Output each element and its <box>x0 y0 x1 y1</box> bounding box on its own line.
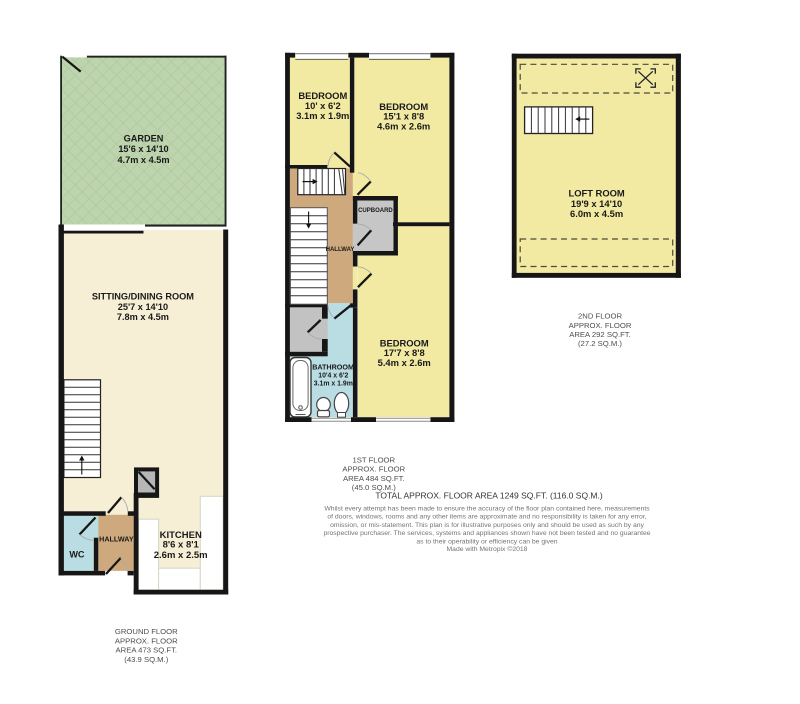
svg-text:25'7 x 14'10: 25'7 x 14'10 <box>118 302 168 312</box>
svg-text:BATHROOM: BATHROOM <box>312 362 354 371</box>
svg-text:APPROX. FLOOR: APPROX. FLOOR <box>569 321 632 330</box>
svg-text:2.6m x 2.5m: 2.6m x 2.5m <box>154 550 208 561</box>
svg-text:15'6 x 14'10: 15'6 x 14'10 <box>118 144 168 154</box>
svg-text:AREA 484 SQ.FT.: AREA 484 SQ.FT. <box>343 474 405 483</box>
svg-text:WC: WC <box>69 550 85 560</box>
svg-text:6.0m x 4.5m: 6.0m x 4.5m <box>570 208 623 219</box>
svg-text:of doors, windows, rooms and a: of doors, windows, rooms and any other i… <box>327 514 646 521</box>
svg-text:SITTING/DINING ROOM: SITTING/DINING ROOM <box>92 291 194 301</box>
svg-text:7.8m x 4.5m: 7.8m x 4.5m <box>117 312 169 322</box>
svg-text:HALLWAY: HALLWAY <box>99 535 134 544</box>
svg-text:GROUND FLOOR: GROUND FLOOR <box>115 627 178 636</box>
svg-text:(27.2 SQ.M.): (27.2 SQ.M.) <box>578 339 622 348</box>
svg-text:AREA 292 SQ.FT.: AREA 292 SQ.FT. <box>569 330 631 339</box>
svg-text:Whilst every attempt has been: Whilst every attempt has been made to en… <box>324 505 650 512</box>
svg-text:APPROX. FLOOR: APPROX. FLOOR <box>342 465 405 474</box>
svg-text:4.7m x 4.5m: 4.7m x 4.5m <box>117 155 169 165</box>
svg-text:1ST FLOOR: 1ST FLOOR <box>353 456 396 465</box>
svg-text:5.4m x 2.6m: 5.4m x 2.6m <box>378 357 431 368</box>
svg-text:3.1m x 1.9m: 3.1m x 1.9m <box>314 380 353 387</box>
svg-text:2ND FLOOR: 2ND FLOOR <box>578 312 622 321</box>
svg-text:Made with Metropix ©2018: Made with Metropix ©2018 <box>447 545 528 553</box>
svg-text:(43.9 SQ.M.): (43.9 SQ.M.) <box>124 655 168 664</box>
svg-text:as to their operability or eff: as to their operability or efficiency ca… <box>416 539 557 546</box>
svg-text:4.6m x 2.6m: 4.6m x 2.6m <box>377 120 430 131</box>
svg-text:prospective purchaser. The ser: prospective purchaser. The services, sys… <box>323 530 650 537</box>
svg-text:GARDEN: GARDEN <box>124 133 164 143</box>
svg-text:HALLWAY: HALLWAY <box>326 247 355 253</box>
svg-text:APPROX. FLOOR: APPROX. FLOOR <box>115 636 178 645</box>
svg-text:omission, or mis-statement. Th: omission, or mis-statement. This plan is… <box>330 522 644 529</box>
svg-text:TOTAL APPROX. FLOOR AREA 1249: TOTAL APPROX. FLOOR AREA 1249 SQ.FT. (11… <box>375 491 603 501</box>
svg-text:AREA 473 SQ.FT.: AREA 473 SQ.FT. <box>116 646 178 655</box>
svg-text:10'4 x 6'2: 10'4 x 6'2 <box>318 372 348 379</box>
svg-text:3.1m x 1.9m: 3.1m x 1.9m <box>296 110 349 121</box>
svg-text:CUPBOARD: CUPBOARD <box>358 208 393 214</box>
